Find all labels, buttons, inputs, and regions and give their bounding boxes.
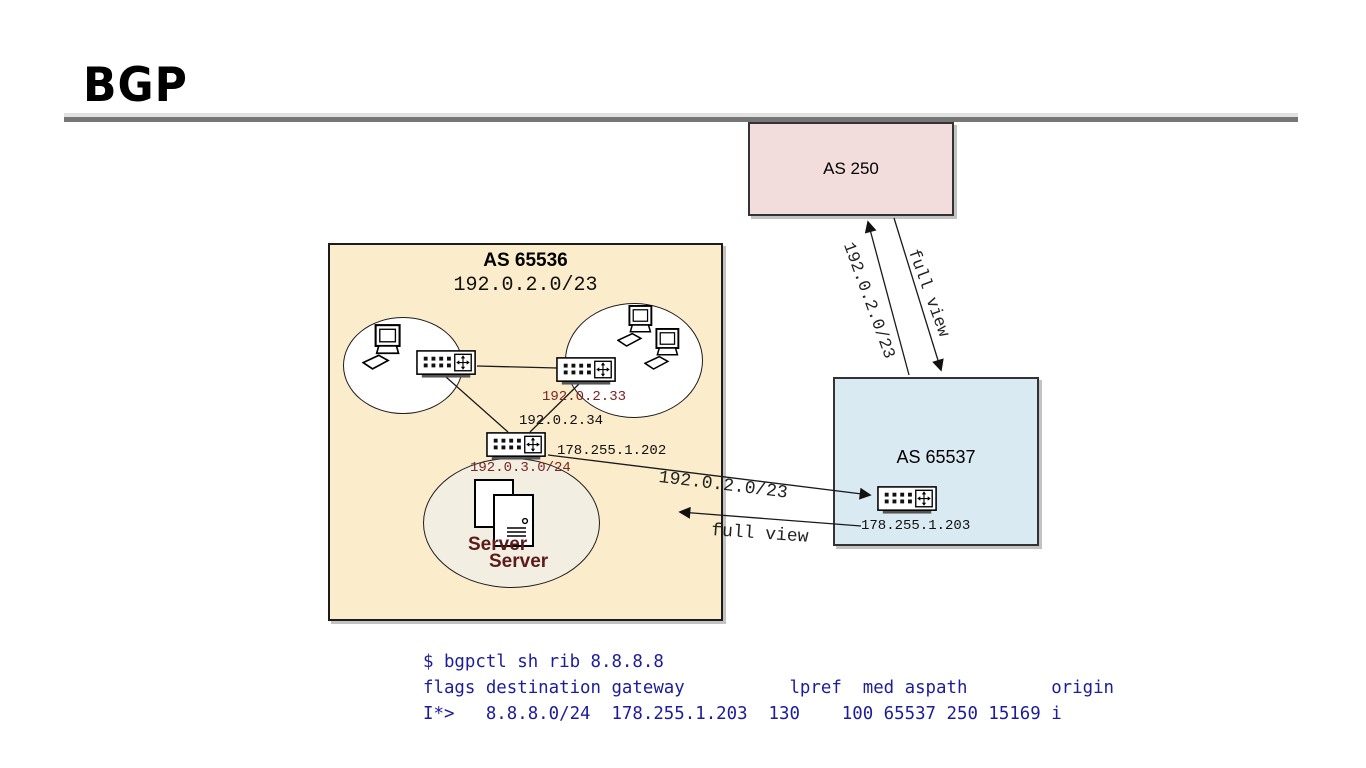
label-server-front: Server	[489, 551, 548, 573]
router-icon-right	[556, 355, 618, 386]
title-rule-dark	[64, 117, 1298, 122]
as65537-label: AS 65537	[835, 447, 1037, 468]
as250-label: AS 250	[823, 159, 879, 179]
workstation-icon-left	[362, 322, 408, 372]
router-icon-as65537	[877, 484, 939, 515]
label-router-core-wan-ip: 178.255.1.202	[557, 443, 666, 459]
as250-box: AS 250	[748, 122, 954, 216]
label-announce-to-as250: 192.0.2.0/23	[838, 240, 898, 362]
slide: BGP AS 250 AS 65536 192.0.2.0/23 AS 6553…	[0, 0, 1366, 768]
terminal-command: $ bgpctl sh rib 8.8.8.8	[423, 649, 1114, 675]
label-fullview-from-as250: full view	[903, 247, 952, 340]
page-title: BGP	[83, 58, 188, 113]
label-as65537-router-ip: 178.255.1.203	[861, 518, 970, 534]
label-router-core-ip: 192.0.2.34	[519, 413, 603, 429]
as65536-label: AS 65536	[330, 250, 721, 272]
terminal-output: $ bgpctl sh rib 8.8.8.8 flags destinatio…	[423, 649, 1114, 727]
title-rule	[64, 113, 1298, 122]
terminal-header: flags destination gateway lpref med aspa…	[423, 675, 1114, 701]
workstation-icon-right-front	[644, 326, 686, 372]
label-fullview-from-as65537: full view	[711, 521, 809, 548]
label-server-subnet: 192.0.3.0/24	[470, 460, 571, 476]
terminal-row: I*> 8.8.8.0/24 178.255.1.203 130 100 655…	[423, 701, 1114, 727]
label-router-right-ip: 192.0.2.33	[542, 389, 626, 405]
router-icon-core	[486, 430, 548, 461]
as65536-prefix: 192.0.2.0/23	[330, 274, 721, 297]
router-icon-left	[416, 348, 478, 379]
